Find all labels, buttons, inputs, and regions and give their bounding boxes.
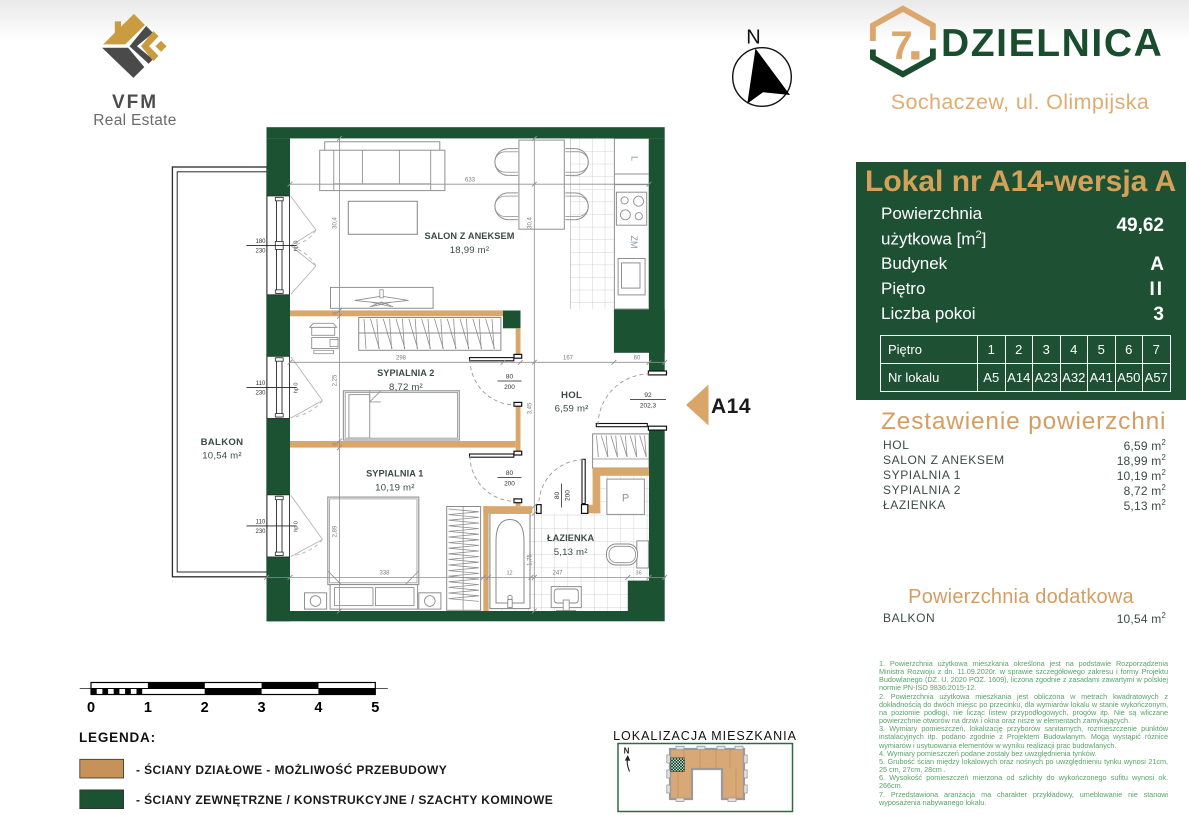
- svg-text:80: 80: [506, 374, 514, 381]
- svg-text:7: 7: [890, 24, 912, 68]
- svg-text:6,59 m²: 6,59 m²: [555, 404, 590, 415]
- svg-text:30,4: 30,4: [527, 217, 533, 229]
- svg-text:230: 230: [255, 529, 266, 535]
- svg-text:18,99 m²: 18,99 m²: [450, 245, 490, 256]
- svg-text:338: 338: [379, 570, 390, 576]
- svg-text:200: 200: [504, 384, 515, 391]
- svg-text:5: 5: [371, 700, 379, 716]
- svg-text:80: 80: [506, 470, 514, 477]
- svg-text:8,72 m²: 8,72 m²: [389, 382, 424, 393]
- svg-text:3,45: 3,45: [527, 402, 533, 414]
- svg-text:1,75: 1,75: [527, 554, 533, 566]
- svg-text:200: 200: [504, 481, 515, 488]
- svg-text:80: 80: [554, 492, 561, 500]
- svg-text:L: L: [630, 156, 640, 161]
- svg-text:110: 110: [256, 520, 266, 526]
- svg-text:N: N: [624, 747, 630, 756]
- svg-text:60: 60: [634, 355, 641, 361]
- svg-text:hp 0: hp 0: [294, 241, 300, 252]
- svg-text:BALKON: BALKON: [201, 437, 244, 448]
- svg-text:30,4: 30,4: [333, 217, 339, 229]
- svg-text:10,19 m²: 10,19 m²: [375, 483, 415, 494]
- svg-text:633: 633: [465, 178, 476, 184]
- svg-text:2: 2: [201, 700, 209, 716]
- svg-text:SYPIALNIA 1: SYPIALNIA 1: [366, 469, 423, 479]
- svg-text:8: 8: [333, 443, 339, 446]
- svg-text:167: 167: [563, 355, 574, 361]
- svg-text:3: 3: [258, 700, 266, 716]
- svg-text:1: 1: [144, 700, 152, 716]
- svg-text:92: 92: [644, 392, 652, 399]
- svg-text:202,3: 202,3: [640, 403, 657, 410]
- svg-text:5,13 m²: 5,13 m²: [554, 547, 589, 558]
- svg-text:ŁAZIENKA: ŁAZIENKA: [547, 533, 595, 543]
- svg-text:36: 36: [636, 570, 642, 576]
- svg-text:N: N: [746, 27, 760, 49]
- svg-text:4: 4: [314, 700, 322, 716]
- svg-text:HOL: HOL: [561, 390, 582, 401]
- svg-text:230: 230: [255, 248, 266, 254]
- svg-text:A14: A14: [711, 395, 751, 418]
- svg-text:10,54 m²: 10,54 m²: [202, 451, 242, 462]
- svg-text:SALON Z ANEKSEM: SALON Z ANEKSEM: [425, 231, 515, 241]
- svg-text:200: 200: [565, 490, 572, 501]
- svg-text:110: 110: [256, 381, 266, 387]
- svg-text:8: 8: [333, 312, 339, 315]
- svg-text:180: 180: [255, 239, 266, 245]
- svg-text:2,25: 2,25: [333, 374, 339, 386]
- svg-text:2,89: 2,89: [333, 525, 339, 537]
- svg-text:ZM: ZM: [629, 236, 639, 249]
- svg-text:hp 0: hp 0: [294, 521, 300, 532]
- svg-text:SYPIALNIA 2: SYPIALNIA 2: [377, 368, 434, 378]
- svg-text:12: 12: [506, 570, 512, 576]
- svg-text:hp 0: hp 0: [294, 383, 300, 394]
- svg-text:298: 298: [396, 355, 407, 361]
- svg-text:247: 247: [552, 570, 563, 576]
- svg-text:P: P: [622, 493, 629, 505]
- svg-text:0: 0: [87, 700, 95, 716]
- svg-text:230: 230: [255, 390, 266, 396]
